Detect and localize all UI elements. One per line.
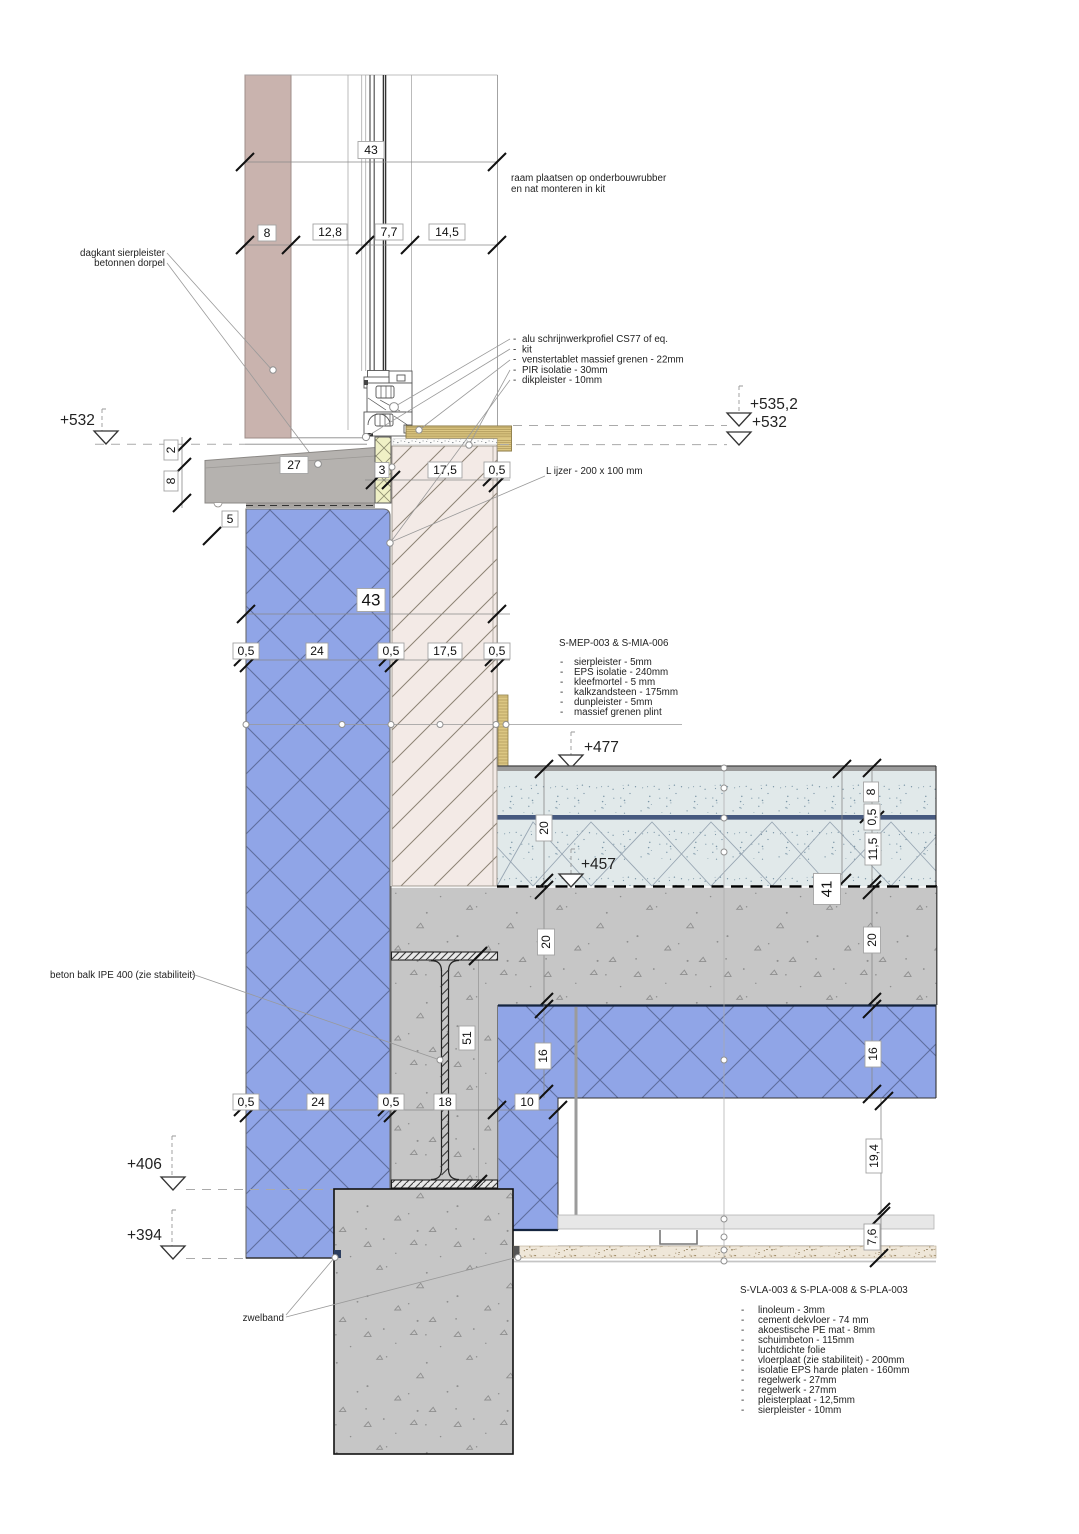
svg-text:+477: +477 bbox=[584, 739, 619, 756]
svg-text:betonnen dorpel: betonnen dorpel bbox=[94, 258, 165, 269]
svg-text:18: 18 bbox=[438, 1095, 452, 1109]
svg-text:raam plaatsen op onderbouwrubb: raam plaatsen op onderbouwrubber bbox=[511, 173, 667, 184]
svg-text:17,5: 17,5 bbox=[433, 644, 457, 658]
svg-text:16: 16 bbox=[536, 1049, 550, 1063]
svg-text:14,5: 14,5 bbox=[435, 225, 459, 239]
svg-text:19,4: 19,4 bbox=[867, 1144, 881, 1168]
svg-text:+532: +532 bbox=[752, 414, 787, 431]
svg-text:17,5: 17,5 bbox=[433, 463, 457, 477]
svg-text:0,5: 0,5 bbox=[865, 808, 879, 825]
svg-text:20: 20 bbox=[865, 933, 879, 947]
svg-text:2: 2 bbox=[164, 446, 178, 453]
svg-text:11,5: 11,5 bbox=[866, 837, 880, 860]
svg-text:S-MEP-003 & S-MIA-006: S-MEP-003 & S-MIA-006 bbox=[559, 638, 669, 649]
svg-text:5: 5 bbox=[227, 512, 234, 526]
svg-text:0,5: 0,5 bbox=[238, 1095, 255, 1109]
svg-text:3: 3 bbox=[379, 463, 386, 477]
svg-text:27: 27 bbox=[287, 458, 301, 472]
svg-text:8: 8 bbox=[264, 226, 271, 240]
svg-text:0,5: 0,5 bbox=[489, 644, 506, 658]
svg-text:beton balk IPE 400 (zie stabil: beton balk IPE 400 (zie stabiliteit) bbox=[50, 970, 195, 981]
svg-text:41: 41 bbox=[819, 881, 836, 898]
svg-text:43: 43 bbox=[364, 143, 378, 157]
svg-text:-: - bbox=[513, 375, 516, 386]
svg-text:dikpleister - 10mm: dikpleister - 10mm bbox=[522, 375, 602, 386]
svg-text:24: 24 bbox=[311, 1095, 325, 1109]
svg-text:massief grenen plint: massief grenen plint bbox=[574, 707, 662, 718]
svg-text:7,7: 7,7 bbox=[381, 225, 398, 239]
svg-text:51: 51 bbox=[460, 1031, 474, 1045]
svg-text:alu schrijnwerkprofiel CS77 o: alu schrijnwerkprofiel CS77 of eq. bbox=[522, 334, 668, 345]
svg-text:24: 24 bbox=[310, 644, 324, 658]
svg-text:0,5: 0,5 bbox=[383, 1095, 400, 1109]
svg-text:+406: +406 bbox=[127, 1156, 162, 1173]
svg-text:0,5: 0,5 bbox=[238, 644, 255, 658]
svg-text:16: 16 bbox=[866, 1047, 880, 1061]
svg-text:-: - bbox=[741, 1405, 744, 1416]
svg-text:7,6: 7,6 bbox=[865, 1228, 879, 1245]
svg-text:43: 43 bbox=[362, 591, 381, 610]
svg-text:sierpleister - 10mm: sierpleister - 10mm bbox=[758, 1405, 841, 1416]
svg-text:zwelband: zwelband bbox=[243, 1313, 284, 1324]
svg-text:10: 10 bbox=[520, 1095, 534, 1109]
svg-text:en nat monteren in kit: en nat monteren in kit bbox=[511, 184, 605, 195]
svg-text:+532: +532 bbox=[60, 412, 95, 429]
svg-text:-: - bbox=[560, 707, 563, 718]
svg-text:12,8: 12,8 bbox=[318, 225, 342, 239]
svg-text:20: 20 bbox=[539, 935, 553, 949]
svg-text:S-VLA-003 & S-PLA-008 & S-PL: S-VLA-003 & S-PLA-008 & S-PLA-003 bbox=[740, 1285, 908, 1296]
svg-text:0,5: 0,5 bbox=[489, 463, 506, 477]
svg-text:20: 20 bbox=[537, 821, 551, 835]
svg-text:0,5: 0,5 bbox=[383, 644, 400, 658]
svg-text:L ijzer - 200 x 100 mm: L ijzer - 200 x 100 mm bbox=[546, 466, 643, 477]
svg-text:8: 8 bbox=[164, 477, 178, 484]
svg-text:+535,2: +535,2 bbox=[750, 396, 798, 413]
svg-text:8: 8 bbox=[864, 788, 878, 795]
svg-text:+394: +394 bbox=[127, 1227, 162, 1244]
svg-text:+457: +457 bbox=[581, 856, 616, 873]
